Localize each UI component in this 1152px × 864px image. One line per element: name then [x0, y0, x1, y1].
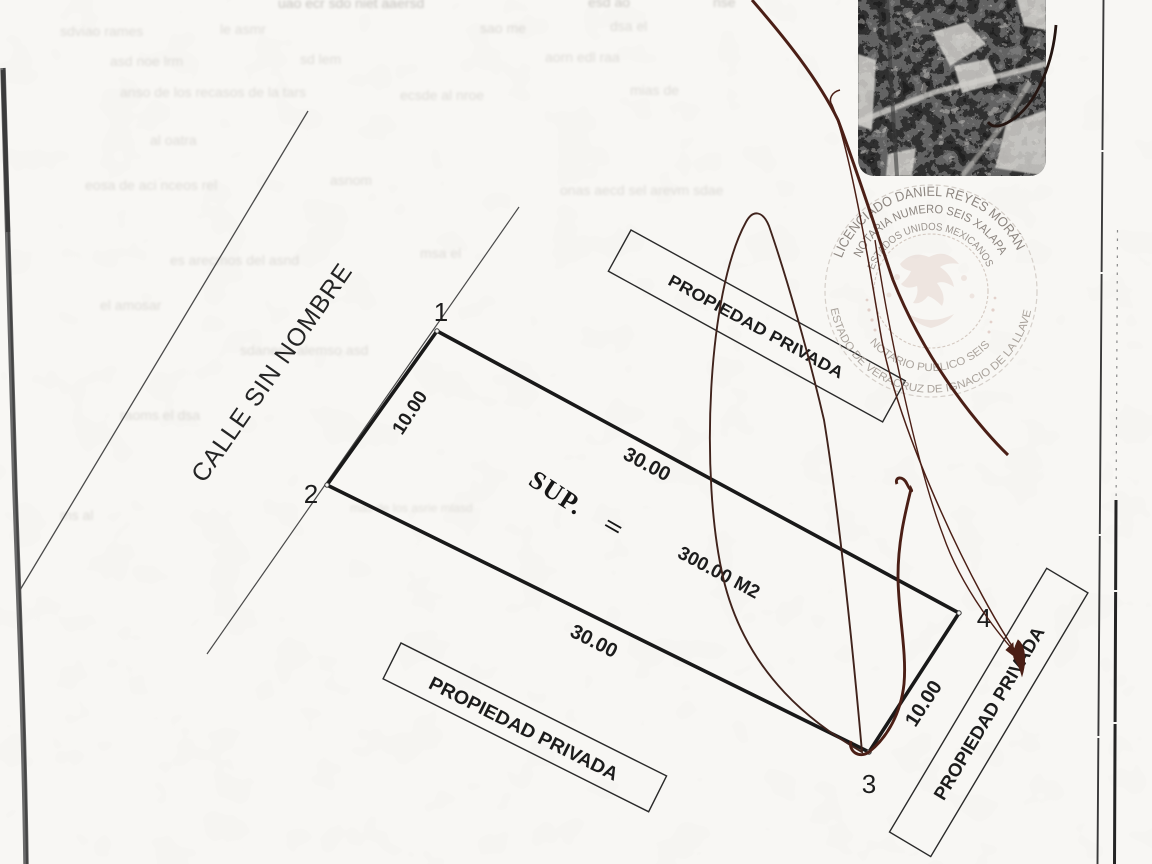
svg-text:esd ao: esd ao [588, 0, 630, 10]
svg-text:el amosar: el amosar [100, 297, 162, 313]
svg-text:le asmr: le asmr [220, 21, 266, 37]
svg-text:eosa de aci nceos rel: eosa de aci nceos rel [85, 177, 217, 193]
svg-text:uao ecr sdo niet aaersd: uao ecr sdo niet aaersd [278, 0, 424, 11]
svg-text:nse: nse [713, 0, 736, 10]
svg-text:mias de: mias de [630, 82, 679, 98]
svg-text:dsa el: dsa el [610, 18, 647, 34]
svg-text:anso de los recasos de la tars: anso de los recasos de la tars [120, 84, 306, 100]
svg-text:aorn edl raa: aorn edl raa [545, 49, 620, 65]
svg-text:asnom: asnom [330, 172, 372, 188]
svg-text:ecsde al nroe: ecsde al nroe [400, 87, 484, 103]
svg-text:msa el: msa el [420, 245, 461, 261]
svg-text:2: 2 [304, 479, 318, 509]
svg-text:asd noe lrm: asd noe lrm [110, 53, 183, 69]
svg-text:sao me: sao me [480, 20, 526, 36]
svg-text:onas aecd sel arevm sdae: onas aecd sel arevm sdae [560, 182, 724, 198]
svg-text:al oatra: al oatra [150, 132, 197, 148]
svg-text:sd lem: sd lem [300, 51, 341, 67]
svg-text:sdviao rames: sdviao rames [60, 23, 143, 39]
svg-text:mas de los asrie mlasd: mas de los asrie mlasd [350, 501, 473, 515]
svg-text:es arecmos del asnd: es arecmos del asnd [170, 252, 299, 268]
svg-text:3: 3 [862, 769, 876, 799]
svg-text:raoms el dsa: raoms el dsa [120, 407, 200, 423]
svg-text:1: 1 [434, 297, 448, 327]
